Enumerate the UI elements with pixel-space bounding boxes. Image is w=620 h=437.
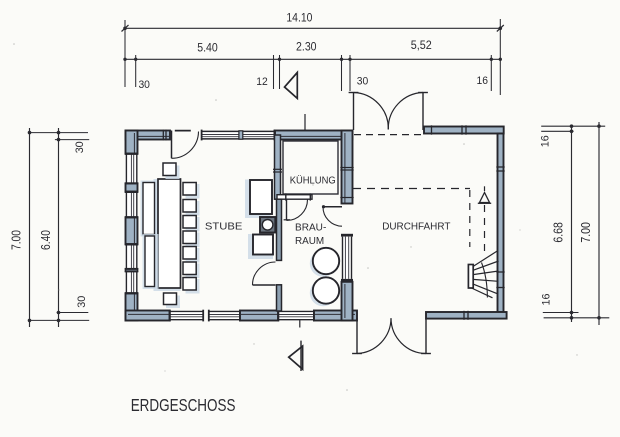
svg-text:STUBE: STUBE [205,220,243,232]
svg-text:6.40: 6.40 [39,230,53,250]
svg-text:6.68: 6.68 [552,222,566,243]
svg-text:16: 16 [541,294,553,306]
svg-text:ERDGESCHOSS: ERDGESCHOSS [131,395,236,415]
svg-text:RAUM: RAUM [295,235,324,247]
svg-text:5.40: 5.40 [197,43,218,55]
svg-text:7.00: 7.00 [579,222,593,243]
svg-text:2.30: 2.30 [296,41,317,53]
svg-text:30: 30 [76,296,88,308]
svg-text:BRAU-: BRAU- [295,222,327,234]
svg-text:5,52: 5,52 [411,40,432,52]
svg-text:7.00: 7.00 [9,230,23,250]
svg-text:30: 30 [357,76,369,88]
svg-text:14.10: 14.10 [286,13,312,25]
svg-text:16: 16 [477,75,489,87]
svg-text:30: 30 [138,79,150,91]
svg-text:30: 30 [74,141,86,153]
svg-text:DURCHFAHRT: DURCHFAHRT [382,222,450,233]
svg-text:12: 12 [256,76,268,88]
svg-text:16: 16 [540,135,552,147]
